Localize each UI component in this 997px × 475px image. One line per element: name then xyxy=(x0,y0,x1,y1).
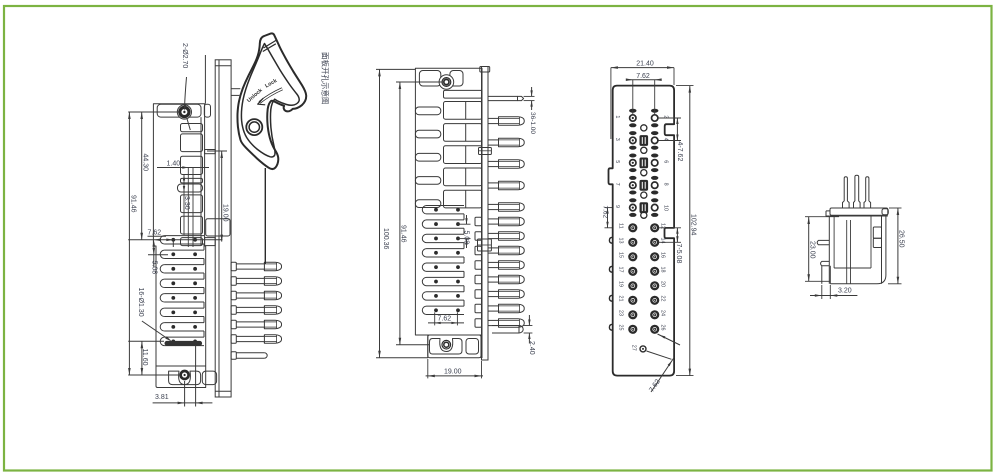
svg-text:18: 18 xyxy=(659,267,665,273)
svg-text:26: 26 xyxy=(659,325,665,331)
svg-text:25: 25 xyxy=(618,325,624,331)
svg-text:3.81: 3.81 xyxy=(155,394,169,401)
svg-text:5: 5 xyxy=(614,160,620,163)
svg-text:36-1.00: 36-1.00 xyxy=(529,112,536,134)
svg-text:3.30: 3.30 xyxy=(183,196,190,210)
svg-text:15: 15 xyxy=(618,252,624,258)
svg-text:7.62: 7.62 xyxy=(602,206,609,219)
svg-text:2-Ø2.70: 2-Ø2.70 xyxy=(181,43,188,68)
svg-text:19.00: 19.00 xyxy=(444,369,462,376)
svg-text:27: 27 xyxy=(630,345,636,351)
svg-text:7.62: 7.62 xyxy=(148,230,162,237)
svg-text:5.08: 5.08 xyxy=(150,261,157,275)
svg-text:面板开孔示意图: 面板开孔示意图 xyxy=(321,52,331,105)
svg-text:13: 13 xyxy=(618,238,624,244)
svg-text:7.62: 7.62 xyxy=(438,316,452,323)
svg-text:17: 17 xyxy=(618,267,624,273)
svg-text:44.30: 44.30 xyxy=(142,154,149,172)
svg-text:24: 24 xyxy=(659,310,665,316)
svg-text:23: 23 xyxy=(618,310,624,316)
svg-text:91.46: 91.46 xyxy=(129,195,136,213)
svg-text:23.00: 23.00 xyxy=(809,241,816,259)
svg-text:3.20: 3.20 xyxy=(838,288,852,295)
svg-text:21.40: 21.40 xyxy=(636,61,654,68)
svg-text:8: 8 xyxy=(662,183,668,186)
svg-text:19: 19 xyxy=(618,281,624,287)
svg-text:3: 3 xyxy=(614,138,620,141)
svg-text:7.62: 7.62 xyxy=(636,73,650,80)
svg-text:19.00: 19.00 xyxy=(221,204,228,222)
svg-text:2.40: 2.40 xyxy=(528,341,535,355)
svg-text:4-7.62: 4-7.62 xyxy=(676,142,683,162)
svg-text:7-5.08: 7-5.08 xyxy=(675,244,682,264)
svg-text:26.50: 26.50 xyxy=(898,230,905,248)
svg-text:7: 7 xyxy=(614,183,620,186)
svg-text:100.36: 100.36 xyxy=(382,228,389,250)
svg-text:21: 21 xyxy=(618,296,624,302)
svg-text:11: 11 xyxy=(618,223,624,229)
svg-text:1: 1 xyxy=(614,115,620,118)
svg-text:20: 20 xyxy=(659,281,665,287)
svg-text:91.46: 91.46 xyxy=(400,225,407,243)
svg-text:16-Ø1.30: 16-Ø1.30 xyxy=(137,288,144,317)
svg-text:1.40: 1.40 xyxy=(167,161,181,168)
svg-text:10: 10 xyxy=(662,205,668,211)
svg-text:11.60: 11.60 xyxy=(141,349,148,366)
svg-text:102.94: 102.94 xyxy=(689,214,696,236)
svg-text:6: 6 xyxy=(662,160,668,163)
svg-text:16: 16 xyxy=(659,252,665,258)
svg-text:9: 9 xyxy=(614,205,620,208)
svg-text:22: 22 xyxy=(659,296,665,302)
svg-text:5.08: 5.08 xyxy=(462,231,469,245)
